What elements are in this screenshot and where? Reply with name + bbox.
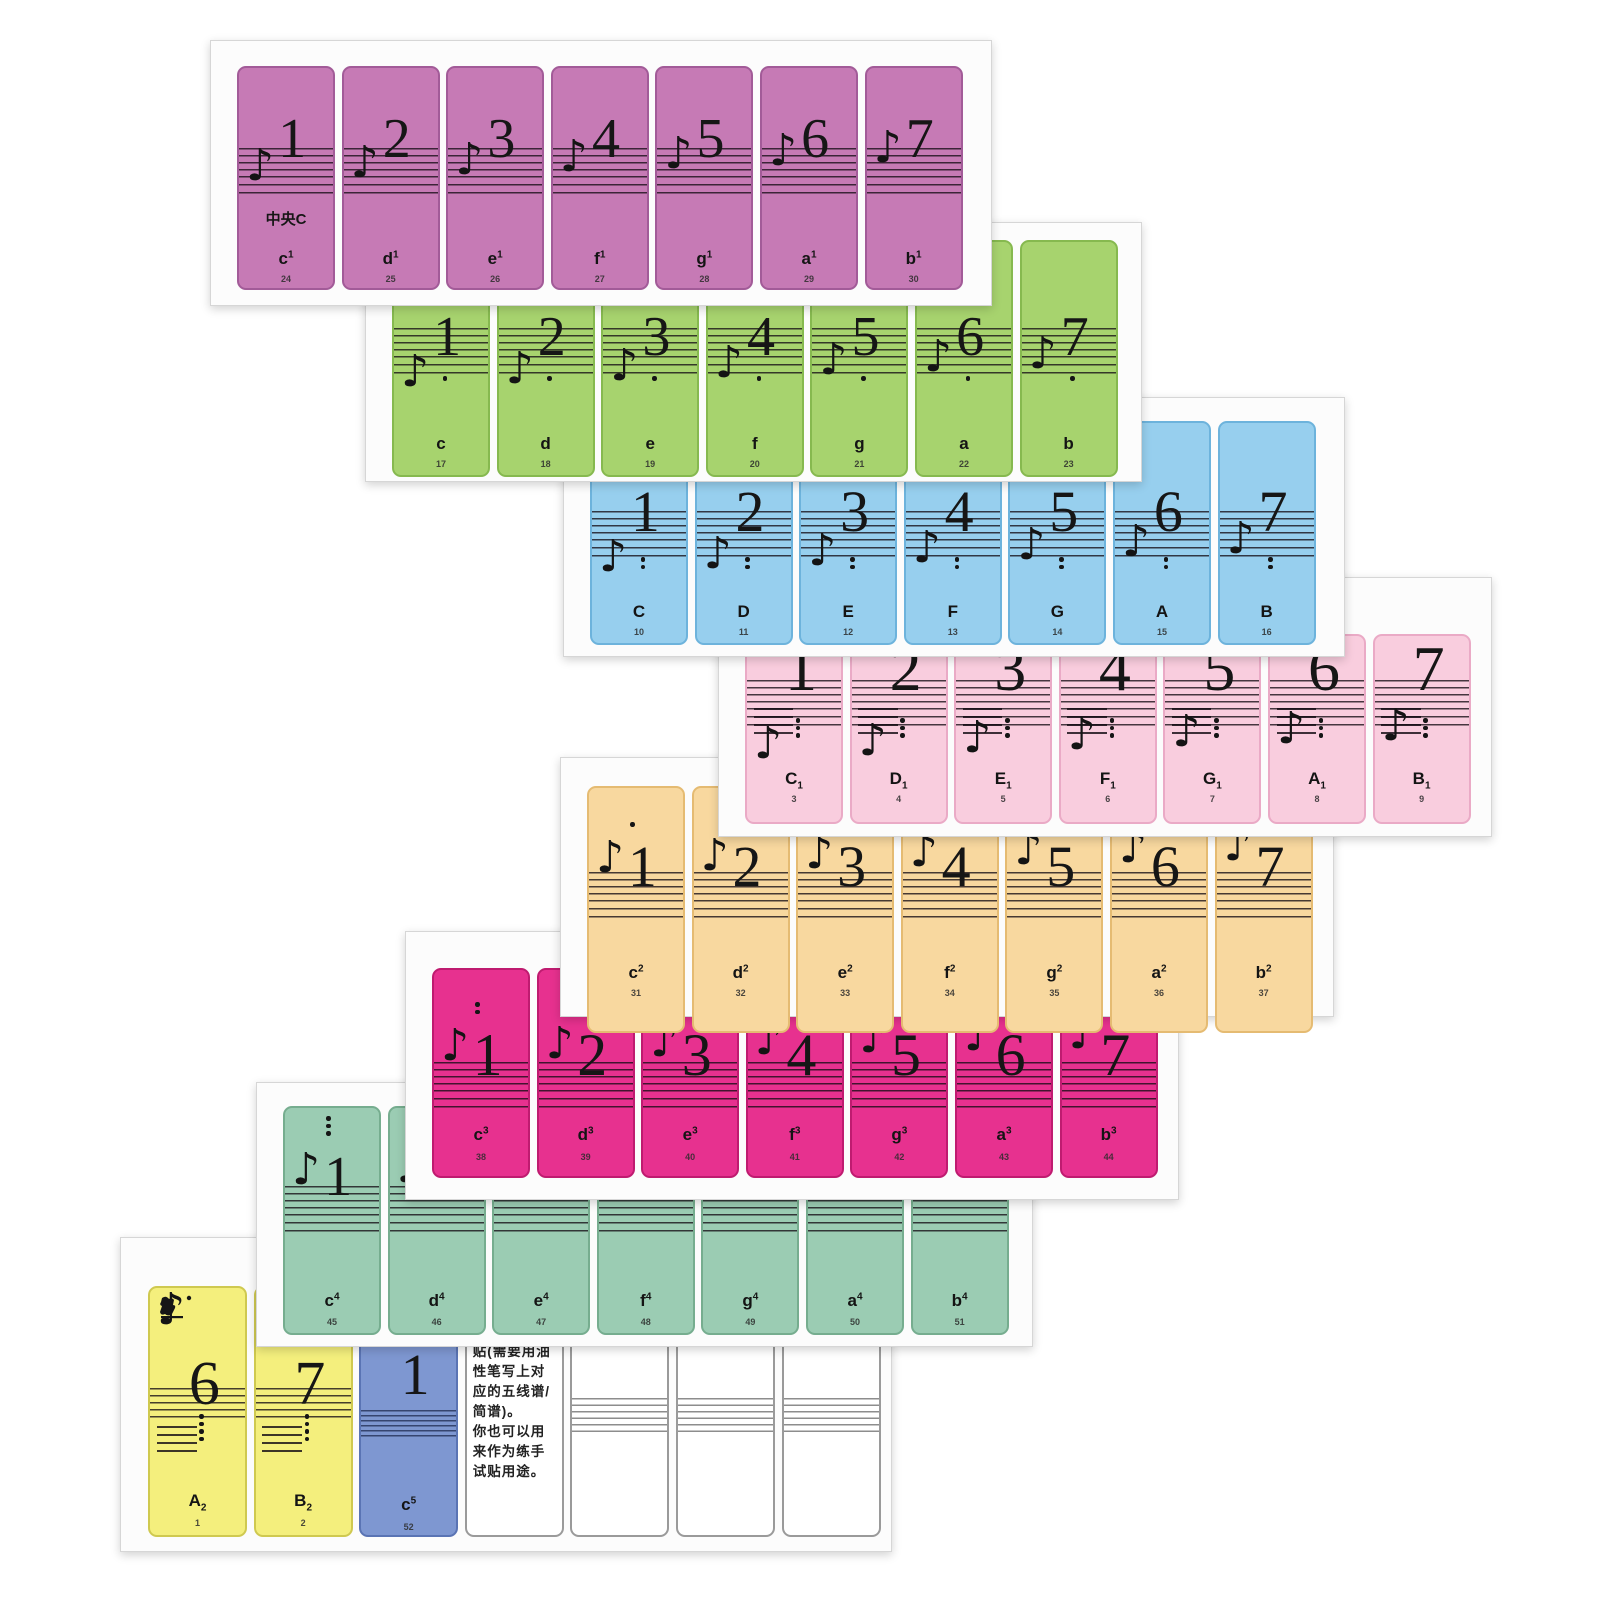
piano-key-sticker: ♪7b23 <box>1020 240 1118 477</box>
note-name-label: F1 <box>1061 770 1155 791</box>
octave-mark: 4 <box>753 1291 759 1302</box>
octave-mark: 1 <box>1320 780 1326 791</box>
note-name-label: G1 <box>1165 770 1259 791</box>
jianpu-number: 2 <box>732 840 761 893</box>
sticker-index-number: 38 <box>434 1152 528 1162</box>
note-name-base: d <box>540 434 550 453</box>
ledger-lines-icon <box>1217 908 1311 918</box>
ledger-lines-icon <box>157 1426 197 1453</box>
note-name-base: b <box>1256 963 1266 982</box>
note-name-label: A1 <box>1270 770 1364 791</box>
note-name-label: a <box>917 435 1011 452</box>
jianpu-number: 1 <box>433 312 461 364</box>
note-name-label: c2 <box>589 964 683 981</box>
eighth-note-icon: ♪ <box>701 834 729 878</box>
eighth-note-icon: ♪ <box>808 529 836 573</box>
octave-mark: 3 <box>1006 1125 1012 1136</box>
jianpu-number: 3 <box>682 1028 712 1083</box>
note-name-label: a2 <box>1112 964 1206 981</box>
eighth-note-icon: ♪ <box>859 719 887 763</box>
sticker-index-number: 39 <box>539 1152 633 1162</box>
sticker-index-number: 35 <box>1007 988 1101 998</box>
octave-mark: 1 <box>1110 780 1116 791</box>
piano-key-sticker: ♪2D14 <box>850 634 948 824</box>
eighth-note-icon: ♪ <box>401 350 429 394</box>
jianpu-number: 5 <box>1049 485 1078 538</box>
sticker-index-number: 9 <box>1375 794 1469 804</box>
note-name-label: E1 <box>956 770 1050 791</box>
sticker-index-number: 27 <box>553 274 647 284</box>
ledger-lines-icon <box>589 908 683 918</box>
note-name-label: A2 <box>150 1492 245 1513</box>
piano-key-sticker: ♪1c338 <box>432 968 530 1178</box>
octave-dots-icon <box>1423 718 1428 738</box>
sticker-index-number: 23 <box>1022 459 1116 469</box>
note-name-base: b <box>1101 1125 1111 1144</box>
sticker-index-number: 5 <box>956 794 1050 804</box>
note-name-label: f3 <box>748 1126 842 1143</box>
sticker-index-number: 26 <box>448 274 542 284</box>
ledger-lines-icon <box>852 1098 946 1108</box>
eighth-note-icon: ♪ <box>599 535 627 579</box>
note-name-base: g <box>742 1291 752 1310</box>
octave-mark: 1 <box>393 249 399 260</box>
sticker-index-number: 34 <box>903 988 997 998</box>
note-name-base: B <box>294 1491 306 1510</box>
octave-mark: 2 <box>1057 963 1063 974</box>
brand-logo-icon <box>158 1294 194 1329</box>
eighth-note-icon: ♪ <box>1172 710 1200 754</box>
eighth-note-icon: ♪ <box>1029 332 1057 376</box>
note-name-base: c <box>473 1125 482 1144</box>
sticker-index-number: 43 <box>957 1152 1051 1162</box>
piano-key-sticker: ♪1中央Cc124 <box>237 66 335 290</box>
sticker-index-number: 6 <box>1061 794 1155 804</box>
octave-mark: 4 <box>857 1291 863 1302</box>
note-name-label: d2 <box>694 964 788 981</box>
piano-key-sticker: ♪2d125 <box>342 66 440 290</box>
eighth-note-icon: ♪ <box>441 1024 469 1068</box>
note-name-base: g <box>891 1125 901 1144</box>
jianpu-number: 1 <box>324 1152 352 1204</box>
note-name-label: e4 <box>494 1292 588 1309</box>
note-name-base: e <box>534 1291 543 1310</box>
octave-dots-icon <box>547 376 552 381</box>
piano-key-sticker: ♪1C13 <box>745 634 843 824</box>
sticker-index-number: 7 <box>1165 794 1259 804</box>
octave-dots-icon <box>1070 376 1075 381</box>
octave-dots-icon <box>475 1002 480 1014</box>
sticker-index-number: 29 <box>762 274 856 284</box>
jianpu-number: 7 <box>1413 640 1445 699</box>
octave-dots-icon <box>850 557 855 569</box>
jianpu-number: 6 <box>956 312 984 364</box>
note-name-base: C <box>633 602 645 621</box>
jianpu-number: 7 <box>906 114 934 166</box>
sticker-index-number: 24 <box>239 274 333 284</box>
note-name-base: D <box>737 602 749 621</box>
note-name-label: C <box>592 603 686 620</box>
ledger-lines-icon <box>262 1426 302 1453</box>
ledger-lines-icon <box>703 1222 797 1232</box>
middle-c-label: 中央C <box>239 208 333 229</box>
note-name-label: e2 <box>798 964 892 981</box>
eighth-note-icon: ♪ <box>351 141 379 185</box>
note-name-base: a <box>959 434 968 453</box>
sticker-index-number: 51 <box>913 1317 1007 1327</box>
octave-dots-icon <box>652 376 657 381</box>
eighth-note-icon: ♪ <box>292 1148 320 1192</box>
jianpu-number: 4 <box>945 485 974 538</box>
note-name-label: e1 <box>448 250 542 267</box>
eighth-note-icon: ♪ <box>805 832 833 876</box>
sticker-index-number: 18 <box>499 459 593 469</box>
sticker-index-number: 52 <box>361 1522 456 1532</box>
sticker-index-number: 13 <box>906 627 1000 637</box>
eighth-note-icon: ♪ <box>455 138 483 182</box>
note-name-base: F <box>1100 769 1110 788</box>
note-name-label: a3 <box>957 1126 1051 1143</box>
octave-dots-icon <box>757 376 762 381</box>
piano-key-sticker: ♪3E15 <box>954 634 1052 824</box>
jianpu-number: 1 <box>628 840 657 893</box>
jianpu-number: 6 <box>189 1356 220 1413</box>
octave-mark: 4 <box>646 1291 652 1302</box>
note-name-base: c <box>278 249 287 268</box>
eighth-note-icon: ♪ <box>506 347 534 391</box>
note-name-label: c5 <box>361 1496 456 1513</box>
note-name-label: D1 <box>852 770 946 791</box>
jianpu-number: 7 <box>1255 840 1284 893</box>
octave-mark: 1 <box>600 249 606 260</box>
jianpu-number: 2 <box>538 312 566 364</box>
note-name-label: b1 <box>867 250 961 267</box>
sticker-index-number: 21 <box>812 459 906 469</box>
ledger-lines-icon <box>285 1222 379 1232</box>
ledger-lines-icon <box>694 908 788 918</box>
note-name-base: c <box>628 963 637 982</box>
piano-key-sticker: ♪7B19 <box>1373 634 1471 824</box>
sticker-index-number: 8 <box>1270 794 1364 804</box>
octave-mark: 2 <box>638 963 644 974</box>
note-name-label: d4 <box>390 1292 484 1309</box>
note-name-base: a <box>996 1125 1005 1144</box>
staff-lines-icon <box>572 1398 667 1435</box>
note-name-label: B2 <box>256 1492 351 1513</box>
eighth-note-icon: ♪ <box>1017 523 1045 567</box>
piano-key-sticker: ♪3e126 <box>446 66 544 290</box>
eighth-note-icon: ♪ <box>1277 707 1305 751</box>
jianpu-number: 3 <box>840 485 869 538</box>
octave-mark: 5 <box>411 1495 417 1506</box>
octave-dots-icon <box>966 376 971 381</box>
sticker-index-number: 47 <box>494 1317 588 1327</box>
ledger-lines-icon <box>1062 1098 1156 1108</box>
note-name-base: F <box>948 602 958 621</box>
octave-mark: 1 <box>288 249 294 260</box>
sticker-index-number: 28 <box>657 274 751 284</box>
sticker-index-number: 16 <box>1220 627 1314 637</box>
note-name-base: D <box>890 769 902 788</box>
sticker-index-number: 19 <box>603 459 697 469</box>
ledger-lines-icon <box>434 1098 528 1108</box>
sticker-index-number: 15 <box>1115 627 1209 637</box>
octave-mark: 4 <box>334 1291 340 1302</box>
note-name-base: e <box>645 434 654 453</box>
jianpu-number: 1 <box>278 114 306 166</box>
ledger-lines-icon <box>599 1222 693 1232</box>
piano-key-sticker: ♪4f127 <box>551 66 649 290</box>
note-name-base: G <box>1203 769 1216 788</box>
ledger-lines-icon <box>957 1098 1051 1108</box>
note-name-base: c <box>324 1291 333 1310</box>
octave-mark: 2 <box>950 963 956 974</box>
jianpu-number: 6 <box>1154 485 1183 538</box>
sticker-index-number: 2 <box>256 1518 351 1528</box>
note-name-label: c4 <box>285 1292 379 1309</box>
note-name-label: e3 <box>643 1126 737 1143</box>
product-photo-canvas: ♪1中央Cc124♪2d125♪3e126♪4f127♪5g128♪6a129♪… <box>0 0 1600 1600</box>
octave-dots-icon <box>1214 718 1219 738</box>
ledger-lines-icon <box>867 184 961 194</box>
jianpu-number: 2 <box>577 1028 607 1083</box>
octave-dots-icon <box>443 376 448 381</box>
sticker-index-number: 14 <box>1010 627 1104 637</box>
octave-mark: 3 <box>588 1125 594 1136</box>
note-name-label: g3 <box>852 1126 946 1143</box>
sticker-index-number: 12 <box>801 627 895 637</box>
octave-mark: 3 <box>692 1125 698 1136</box>
octave-dots-icon <box>1005 718 1010 738</box>
eighth-note-icon: ♪ <box>1122 520 1150 564</box>
jianpu-number: 6 <box>801 114 829 166</box>
note-name-label: a1 <box>762 250 856 267</box>
eighth-note-icon: ♪ <box>715 341 743 385</box>
octave-dots-icon <box>900 718 905 738</box>
piano-key-sticker: ♪6a129 <box>760 66 858 290</box>
octave-mark: 2 <box>743 963 749 974</box>
octave-dots-icon <box>1110 718 1115 738</box>
octave-mark: 1 <box>1006 780 1012 791</box>
octave-mark: 4 <box>439 1291 445 1302</box>
note-name-label: G <box>1010 603 1104 620</box>
eighth-note-icon: ♪ <box>754 722 782 766</box>
sticker-index-number: 1 <box>150 1518 245 1528</box>
jianpu-number: 1 <box>401 1348 430 1401</box>
note-name-base: a <box>1151 963 1160 982</box>
eighth-note-icon: ♪ <box>819 338 847 382</box>
note-name-base: E <box>843 602 854 621</box>
sticker-index-number: 44 <box>1062 1152 1156 1162</box>
octave-mark: 3 <box>795 1125 801 1136</box>
eighth-note-icon: ♪ <box>560 135 588 179</box>
octave-mark: 2 <box>1161 963 1167 974</box>
note-name-label: g4 <box>703 1292 797 1309</box>
note-name-base: e <box>683 1125 692 1144</box>
ledger-lines-icon <box>762 184 856 194</box>
sticker-index-number: 4 <box>852 794 946 804</box>
octave-mark: 1 <box>707 249 713 260</box>
jianpu-number: 4 <box>786 1028 816 1083</box>
note-name-base: d <box>733 963 743 982</box>
octave-mark: 1 <box>797 780 803 791</box>
sticker-index-number: 10 <box>592 627 686 637</box>
octave-mark: 1 <box>811 249 817 260</box>
instruction-text: 贴(需要用油性笔写上对应的五线谱/简谱)。 你也可以用来作为练手试贴用途。 <box>473 1342 557 1482</box>
octave-mark: 2 <box>306 1502 312 1513</box>
eighth-note-icon: ♪ <box>963 716 991 760</box>
octave-dots-icon <box>745 557 750 569</box>
jianpu-number: 4 <box>942 840 971 893</box>
octave-mark: 1 <box>902 780 908 791</box>
jianpu-number: 2 <box>383 114 411 166</box>
note-name-base: A <box>1308 769 1320 788</box>
staff-lines-icon <box>784 1398 879 1435</box>
eighth-note-icon: ♪ <box>1382 704 1410 748</box>
ledger-lines-icon <box>448 184 542 194</box>
note-name-base: B <box>1260 602 1272 621</box>
ledger-lines-icon <box>643 1098 737 1108</box>
note-name-base: f <box>752 434 758 453</box>
ledger-lines-icon <box>808 1222 902 1232</box>
octave-dots-icon <box>305 1414 310 1441</box>
note-name-label: B <box>1220 603 1314 620</box>
jianpu-number: 6 <box>1151 840 1180 893</box>
note-name-base: d <box>578 1125 588 1144</box>
jianpu-number: 3 <box>837 840 866 893</box>
eighth-note-icon: ♪ <box>664 132 692 176</box>
octave-dots-icon <box>641 557 646 569</box>
note-name-label: b4 <box>913 1292 1007 1309</box>
octave-mark: 1 <box>1425 780 1431 791</box>
octave-mark: 1 <box>497 249 503 260</box>
note-name-base: a <box>801 249 810 268</box>
ledger-lines-icon <box>494 1222 588 1232</box>
sticker-index-number: 31 <box>589 988 683 998</box>
jianpu-number: 5 <box>697 114 725 166</box>
octave-dots-icon <box>199 1414 204 1441</box>
note-name-label: f4 <box>599 1292 693 1309</box>
piano-key-sticker: ♪7B16 <box>1218 421 1316 645</box>
sticker-index-number: 33 <box>798 988 892 998</box>
sticker-index-number: 46 <box>390 1317 484 1327</box>
note-name-base: c <box>401 1495 410 1514</box>
octave-mark: 3 <box>902 1125 908 1136</box>
jianpu-number: 5 <box>1046 840 1075 893</box>
sticker-sheet-one-line-octave: ♪1中央Cc124♪2d125♪3e126♪4f127♪5g128♪6a129♪… <box>210 40 992 306</box>
sticker-index-number: 48 <box>599 1317 693 1327</box>
note-name-label: D <box>697 603 791 620</box>
note-name-base: e <box>488 249 497 268</box>
piano-key-sticker: ♪7b130 <box>865 66 963 290</box>
note-name-label: b3 <box>1062 1126 1156 1143</box>
piano-key-sticker: ♪6A21 <box>148 1286 247 1537</box>
piano-key-sticker: ♪1c231 <box>587 786 685 1033</box>
sticker-index-number: 20 <box>708 459 802 469</box>
octave-mark: 3 <box>1111 1125 1117 1136</box>
note-name-base: g <box>854 434 864 453</box>
note-name-label: f <box>708 435 802 452</box>
note-name-base: a <box>847 1291 856 1310</box>
jianpu-number: 5 <box>852 312 880 364</box>
note-name-label: a4 <box>808 1292 902 1309</box>
ledger-lines-icon <box>903 908 997 918</box>
note-name-label: E <box>801 603 895 620</box>
jianpu-number: 2 <box>735 485 764 538</box>
octave-mark: 3 <box>483 1125 489 1136</box>
octave-mark: 4 <box>543 1291 549 1302</box>
eighth-note-icon: ♪ <box>769 129 797 173</box>
ledger-lines-icon <box>748 1098 842 1108</box>
ledger-lines-icon <box>1112 908 1206 918</box>
note-name-base: c <box>436 434 445 453</box>
eighth-note-icon: ♪ <box>913 526 941 570</box>
ledger-lines-icon <box>657 184 751 194</box>
octave-mark: 2 <box>1266 963 1272 974</box>
octave-mark: 1 <box>1216 780 1222 791</box>
note-name-label: g <box>812 435 906 452</box>
sticker-index-number: 49 <box>703 1317 797 1327</box>
staff-lines-icon <box>678 1398 773 1435</box>
note-name-base: b <box>952 1291 962 1310</box>
octave-dots-icon <box>1319 718 1324 738</box>
sticker-index-number: 41 <box>748 1152 842 1162</box>
jianpu-number: 4 <box>747 312 775 364</box>
eighth-note-icon: ♪ <box>874 126 902 170</box>
jianpu-number: 1 <box>473 1028 503 1083</box>
note-name-label: d1 <box>344 250 438 267</box>
octave-mark: 4 <box>962 1291 968 1302</box>
jianpu-number: 3 <box>487 114 515 166</box>
octave-dots-icon <box>1059 557 1064 569</box>
octave-dots-icon <box>861 376 866 381</box>
piano-key-sticker: ♪5g128 <box>655 66 753 290</box>
eighth-note-icon: ♪ <box>246 144 274 188</box>
note-name-label: e <box>603 435 697 452</box>
octave-mark: 2 <box>201 1502 207 1513</box>
note-name-label: c <box>394 435 488 452</box>
octave-dots-icon <box>796 718 801 738</box>
jianpu-number: 5 <box>891 1028 921 1083</box>
piano-key-sticker: ♪1c445 <box>283 1106 381 1335</box>
jianpu-number: 7 <box>1061 312 1089 364</box>
octave-dots-icon <box>326 1116 331 1136</box>
note-name-base: C <box>785 769 797 788</box>
note-name-label: B1 <box>1375 770 1469 791</box>
ledger-lines-icon <box>798 908 892 918</box>
note-name-label: f2 <box>903 964 997 981</box>
octave-dots-icon <box>630 822 635 827</box>
note-name-label: f1 <box>553 250 647 267</box>
note-name-base: e <box>838 963 847 982</box>
jianpu-number: 7 <box>1100 1028 1130 1083</box>
jianpu-number: 1 <box>631 485 660 538</box>
note-name-label: g1 <box>657 250 751 267</box>
note-name-base: b <box>1063 434 1073 453</box>
note-name-base: g <box>1046 963 1056 982</box>
note-name-label: d <box>499 435 593 452</box>
jianpu-number: 7 <box>1258 485 1287 538</box>
note-name-base: B <box>1413 769 1425 788</box>
note-name-label: F <box>906 603 1000 620</box>
jianpu-number: 3 <box>642 312 670 364</box>
note-name-base: A <box>189 1491 201 1510</box>
jianpu-number: 4 <box>592 114 620 166</box>
sticker-index-number: 3 <box>747 794 841 804</box>
sticker-index-number: 30 <box>867 274 961 284</box>
octave-mark: 2 <box>847 963 853 974</box>
sticker-index-number: 36 <box>1112 988 1206 998</box>
